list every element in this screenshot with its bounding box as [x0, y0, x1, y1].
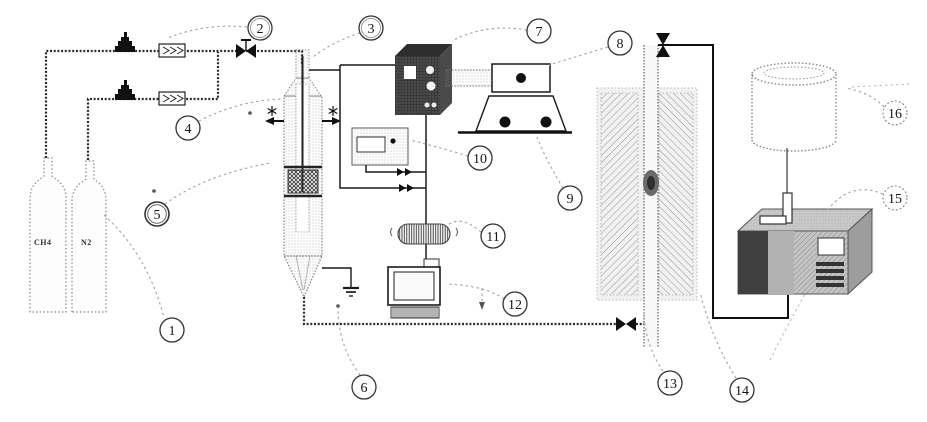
monitor-screen [394, 272, 434, 300]
reactor-cone [284, 256, 322, 297]
callout-2: 2 [168, 16, 272, 40]
leader-line [410, 140, 468, 156]
gas-supply-section: CH4 N2 [30, 158, 106, 312]
flow-meter-2 [159, 92, 185, 105]
coil-body [398, 224, 450, 244]
leader-line [549, 47, 608, 65]
machine-mid-panel [768, 231, 794, 294]
display-window [404, 66, 416, 79]
computer-monitor [388, 259, 440, 318]
quartz-tube-bore [644, 45, 658, 348]
analyzer-machine [738, 193, 872, 294]
pressure-regulator-2 [115, 80, 135, 100]
machine-display [818, 238, 844, 255]
plasma-reactor [265, 50, 341, 297]
leader-line [447, 221, 481, 232]
callout-1-number: 1 [169, 324, 176, 339]
gas-cylinder-2: N2 [72, 161, 106, 312]
leader-dot [152, 189, 156, 193]
callout-14-number: 14 [735, 384, 749, 399]
left-outlet-arrow [265, 117, 284, 125]
leader-dot [248, 111, 252, 115]
leader-line [338, 308, 360, 375]
tube-furnace [597, 45, 697, 348]
cylinder-2-label: N2 [81, 238, 92, 247]
lamp-housing [476, 96, 566, 131]
callout-6: 6 [336, 304, 376, 399]
pressure-regulator-1 [115, 32, 135, 52]
star-marker-left [268, 106, 277, 116]
callout-13-number: 13 [663, 377, 677, 392]
callout-8: 8 [549, 31, 632, 65]
inlet-valve [236, 40, 256, 58]
callout-15-number: 15 [888, 192, 902, 207]
knob-icon [390, 138, 395, 143]
instrument-display [357, 137, 385, 152]
callout-14: 14 [700, 280, 813, 402]
leader-line-2 [852, 84, 910, 87]
leader-line [452, 28, 527, 41]
leader-line [104, 215, 164, 318]
furnace-insulation-right [659, 93, 693, 295]
furnace-insulation-left [601, 93, 638, 295]
indicator-dot-icon [541, 117, 552, 128]
callout-10-number: 10 [473, 152, 487, 167]
drum-bottom [752, 140, 836, 151]
leader-line [537, 137, 563, 188]
reactor-outlet-pipe [304, 297, 616, 324]
gas-cylinder-1: CH4 [30, 158, 66, 312]
leader-dot [336, 304, 340, 308]
leader-line [313, 33, 360, 57]
right-outlet-arrow [322, 117, 341, 125]
sensor-foot [760, 216, 786, 224]
catalyst-packing [288, 170, 318, 193]
callout-3-number: 3 [368, 22, 375, 37]
callout-3: 3 [313, 16, 383, 57]
callout-10: 10 [410, 140, 492, 170]
callout-8-number: 8 [617, 37, 624, 52]
callout-6-number: 6 [361, 381, 368, 396]
connector-arm [446, 70, 494, 86]
leader-line [168, 26, 247, 38]
callout-9: 9 [537, 137, 582, 210]
callout-7-number: 7 [536, 25, 543, 40]
callout-16: 16 [845, 84, 910, 125]
gas-line-2-pipe [88, 52, 218, 160]
cylinder-1-label: CH4 [34, 238, 52, 247]
flow-meter-1 [159, 44, 185, 57]
callout-12-number: 12 [508, 298, 522, 313]
knob-icon [427, 82, 436, 91]
heating-coil [391, 224, 458, 244]
button-icon [425, 103, 430, 108]
sample-core [647, 176, 655, 190]
callout-5-number: 5 [154, 208, 161, 223]
keyboard [391, 307, 439, 318]
indicator-dot-icon [516, 73, 526, 83]
monitor-tab [424, 259, 439, 267]
vent-slot [816, 283, 844, 287]
leader-line [845, 88, 884, 107]
instrument-wire [366, 165, 426, 172]
callout-16-number: 16 [888, 107, 902, 122]
leader-arrowhead [479, 302, 485, 310]
callout-5: 5 [145, 163, 270, 226]
diagram-page: CH4 N2 [0, 0, 927, 422]
vent-slot [816, 269, 844, 273]
callout-11-number: 11 [486, 230, 499, 245]
callout-12: 12 [448, 284, 527, 316]
button-icon [432, 103, 437, 108]
leader-line [165, 163, 270, 204]
cylinder-body [30, 158, 66, 312]
callout-9-number: 9 [567, 192, 574, 207]
knob-icon [426, 66, 434, 74]
measuring-instrument [352, 128, 408, 165]
callout-7: 7 [452, 19, 551, 43]
schematic-diagram: CH4 N2 [0, 0, 927, 422]
callout-2-number: 2 [257, 22, 264, 37]
gas-collector-drum [752, 63, 836, 195]
callout-4-number: 4 [185, 122, 192, 137]
leader-line [448, 284, 504, 299]
leader-line [700, 292, 736, 378]
vent-slot [816, 276, 844, 280]
callout-15: 15 [826, 186, 907, 212]
cylinder-body [72, 161, 106, 312]
hv-power-supply [395, 44, 452, 115]
ground-symbol [322, 268, 359, 296]
machine-dark-panel [738, 231, 768, 294]
indicator-dot-icon [500, 117, 511, 128]
detector-assembly [446, 64, 572, 133]
callout-11: 11 [447, 221, 505, 248]
callout-4: 4 [176, 99, 283, 140]
bottom-valve [616, 317, 636, 331]
star-marker-right [329, 106, 338, 116]
callout-1: 1 [104, 215, 184, 342]
vent-slot [816, 262, 844, 266]
drum-top-inner [764, 67, 824, 79]
